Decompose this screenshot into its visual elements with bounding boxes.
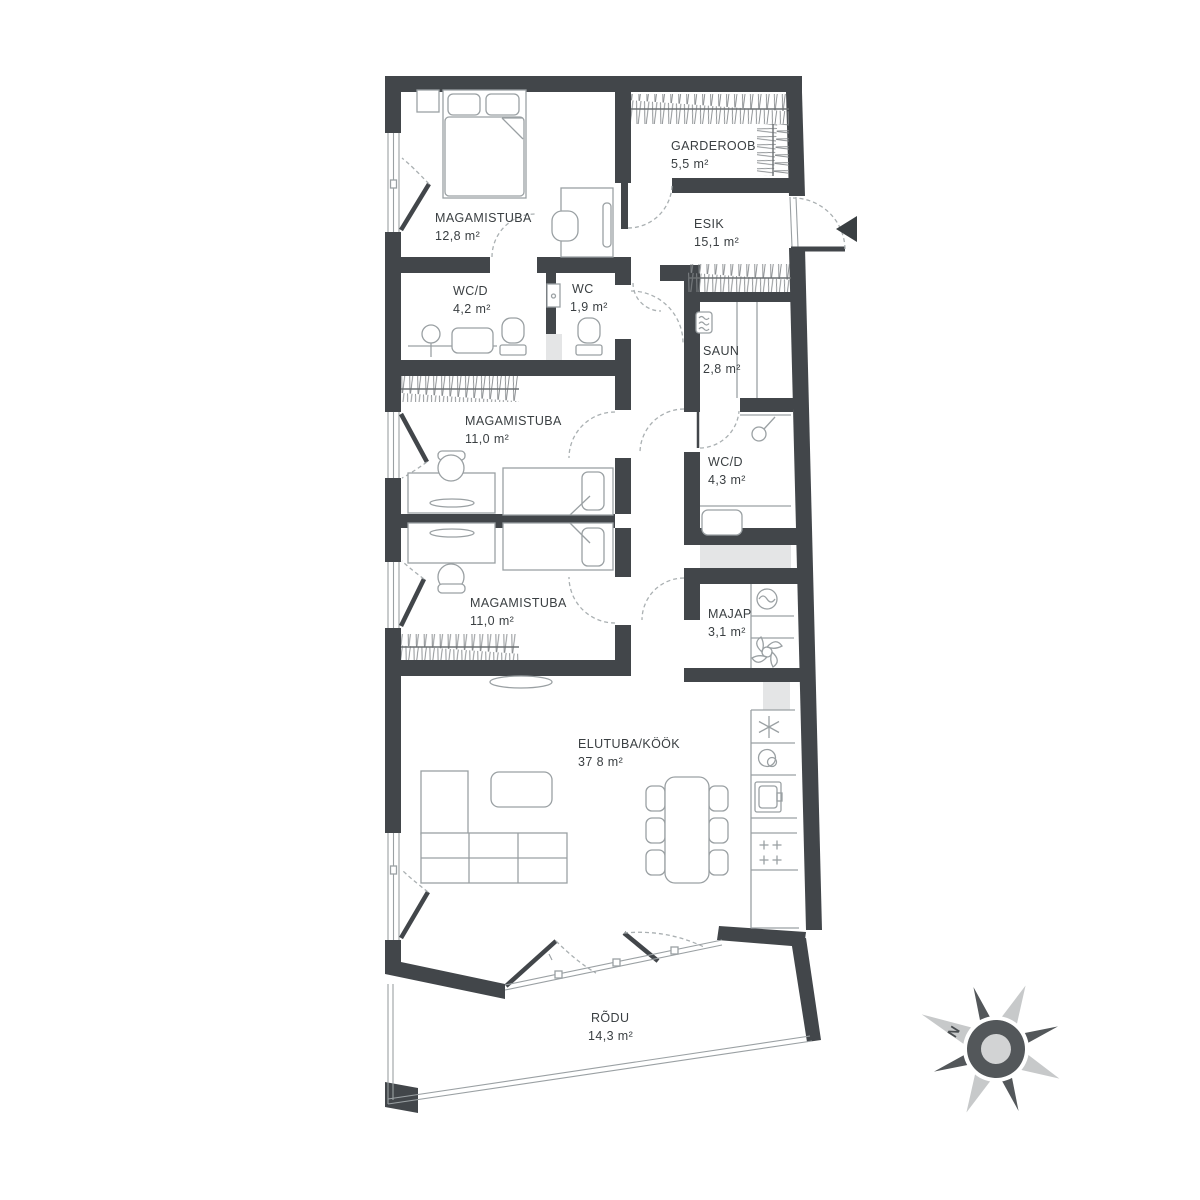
wall-lamp-icon bbox=[490, 676, 552, 688]
window bbox=[388, 562, 399, 628]
toilet-icon bbox=[502, 318, 524, 343]
svg-text:4,3 m²: 4,3 m² bbox=[708, 473, 746, 487]
room-label-esik: ESIK 15,1 m² bbox=[694, 217, 739, 249]
room-label-wc: WC 1,9 m² bbox=[570, 282, 608, 314]
dishwasher-icon bbox=[759, 750, 777, 767]
svg-text:ESIK: ESIK bbox=[694, 217, 724, 231]
svg-text:2,8 m²: 2,8 m² bbox=[703, 362, 741, 376]
room-label-magamistuba-1: MAGAMISTUBA 12,8 m² bbox=[435, 211, 532, 243]
svg-text:15,1 m²: 15,1 m² bbox=[694, 235, 739, 249]
svg-text:11,0 m²: 11,0 m² bbox=[465, 432, 509, 446]
shower-icon bbox=[752, 427, 766, 441]
svg-text:WC/D: WC/D bbox=[708, 455, 743, 469]
washbasin-icon bbox=[702, 510, 742, 535]
room-label-wcd-2: WC/D 4,3 m² bbox=[708, 455, 746, 487]
washing-machine-icon bbox=[757, 589, 777, 609]
dining-table bbox=[665, 777, 709, 883]
svg-text:ELUTUBA/KÖÖK: ELUTUBA/KÖÖK bbox=[578, 737, 680, 751]
entry-door bbox=[790, 197, 857, 249]
double-bed bbox=[417, 90, 526, 198]
room-label-magamistuba-3: MAGAMISTUBA 11,0 m² bbox=[470, 596, 567, 628]
window bbox=[388, 412, 399, 478]
room-label-elutuba-kook: ELUTUBA/KÖÖK 37 8 m² bbox=[578, 737, 680, 769]
window bbox=[388, 133, 399, 232]
dining-set bbox=[646, 777, 728, 883]
svg-text:4,2 m²: 4,2 m² bbox=[453, 302, 491, 316]
washbasin-icon bbox=[547, 284, 560, 307]
room-label-saun: SAUN 2,8 m² bbox=[703, 344, 741, 376]
bedroom3-furniture bbox=[408, 523, 613, 593]
toilet-icon bbox=[578, 318, 600, 343]
svg-text:37 8 m²: 37 8 m² bbox=[578, 755, 623, 769]
mirror-lamp-icon bbox=[422, 325, 440, 343]
room-label-magamistuba-2: MAGAMISTUBA 11,0 m² bbox=[465, 414, 562, 446]
stove-icon bbox=[760, 841, 782, 865]
svg-text:12,8 m²: 12,8 m² bbox=[435, 229, 480, 243]
coffee-table bbox=[491, 772, 552, 807]
floor-plan: MAGAMISTUBA 12,8 m² GARDEROOB 5,5 m² ESI… bbox=[0, 0, 1200, 1200]
svg-text:14,3 m²: 14,3 m² bbox=[588, 1029, 633, 1043]
freezer-icon bbox=[759, 716, 779, 738]
bathroom-fixtures bbox=[408, 318, 526, 357]
room-label-garderoob: GARDEROOB 5,5 m² bbox=[671, 139, 756, 171]
kitchen-sink-icon bbox=[755, 782, 782, 812]
washbasin-icon bbox=[452, 328, 493, 353]
svg-text:GARDEROOB: GARDEROOB bbox=[671, 139, 756, 153]
window bbox=[388, 833, 399, 940]
desk-and-chair bbox=[552, 188, 613, 257]
svg-text:WC/D: WC/D bbox=[453, 284, 488, 298]
entry-direction-arrow-icon bbox=[836, 216, 857, 242]
svg-text:1,9 m²: 1,9 m² bbox=[570, 300, 608, 314]
svg-text:RÕDU: RÕDU bbox=[591, 1010, 629, 1025]
room-label-rodu: RÕDU 14,3 m² bbox=[588, 1010, 633, 1043]
kitchen-appliances bbox=[751, 710, 799, 928]
svg-text:WC: WC bbox=[572, 282, 594, 296]
svg-text:11,0 m²: 11,0 m² bbox=[470, 614, 514, 628]
compass-rose-icon: N bbox=[911, 964, 1080, 1133]
svg-text:MAGAMISTUBA: MAGAMISTUBA bbox=[470, 596, 567, 610]
room-label-majap: MAJAP 3,1 m² bbox=[708, 607, 752, 639]
svg-text:MAGAMISTUBA: MAGAMISTUBA bbox=[435, 211, 532, 225]
bedroom2-furniture bbox=[408, 451, 613, 515]
svg-text:3,1 m²: 3,1 m² bbox=[708, 625, 746, 639]
svg-text:5,5 m²: 5,5 m² bbox=[671, 157, 709, 171]
svg-text:SAUN: SAUN bbox=[703, 344, 739, 358]
svg-text:MAJAP: MAJAP bbox=[708, 607, 752, 621]
room-label-wcd-1: WC/D 4,2 m² bbox=[453, 284, 491, 316]
utility-room-appliances bbox=[751, 584, 794, 668]
svg-text:MAGAMISTUBA: MAGAMISTUBA bbox=[465, 414, 562, 428]
ventilation-fan-icon bbox=[752, 637, 782, 667]
floor-plan-page: MAGAMISTUBA 12,8 m² GARDEROOB 5,5 m² ESI… bbox=[0, 0, 1200, 1200]
